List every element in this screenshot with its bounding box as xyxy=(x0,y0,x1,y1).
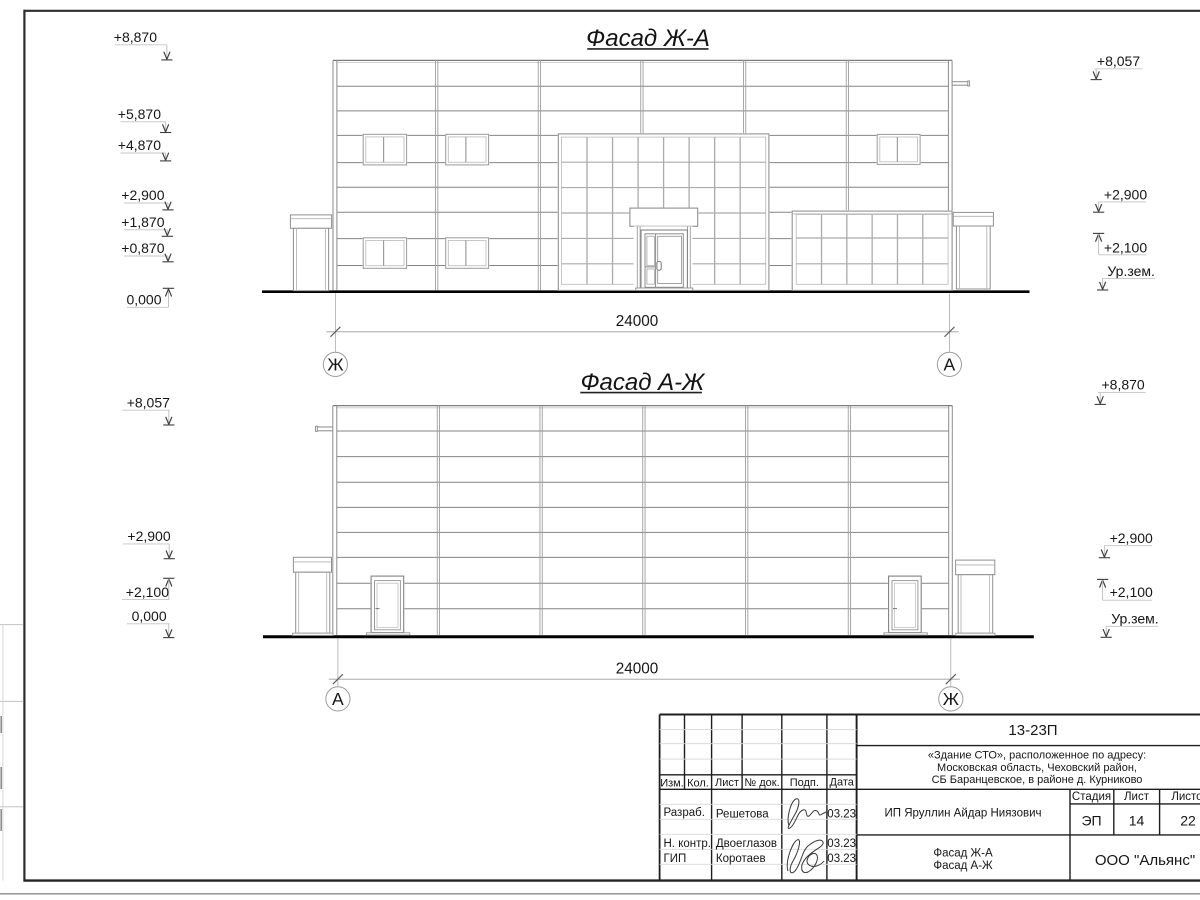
svg-text:Н. контр.: Н. контр. xyxy=(664,838,711,850)
svg-text:Лист: Лист xyxy=(715,777,739,789)
svg-text:А: А xyxy=(332,689,344,709)
svg-text:0,000: 0,000 xyxy=(132,608,167,624)
svg-text:«Здание СТО», расположенное по: «Здание СТО», расположенное по адресу: xyxy=(928,750,1146,762)
svg-text:Дата: Дата xyxy=(830,776,855,788)
svg-text:13-23П: 13-23П xyxy=(1008,722,1057,739)
svg-text:0,000: 0,000 xyxy=(126,292,161,308)
svg-text:+8,870: +8,870 xyxy=(1102,377,1145,393)
svg-text:Ур.зем.: Ур.зем. xyxy=(1111,611,1159,627)
svg-text:Московская область, Чеховский: Московская область, Чеховский район, xyxy=(937,762,1137,774)
svg-text:03.23: 03.23 xyxy=(827,853,856,865)
svg-text:ЭП: ЭП xyxy=(1081,813,1101,829)
svg-text:03.23: 03.23 xyxy=(827,838,856,850)
svg-text:Разраб.: Разраб. xyxy=(664,807,705,819)
svg-text:ООО "Альянс": ООО "Альянс" xyxy=(1095,852,1195,869)
svg-text:24000: 24000 xyxy=(616,313,659,330)
svg-text:+2,900: +2,900 xyxy=(121,187,164,203)
svg-text:+1,870: +1,870 xyxy=(121,214,164,230)
svg-text:№ док.: № док. xyxy=(744,777,779,789)
svg-text:Решетова: Решетова xyxy=(716,809,769,821)
svg-text:СБ Баранцевское, в районе д. К: СБ Баранцевское, в районе д. Курниково xyxy=(932,774,1143,786)
svg-text:Кол.: Кол. xyxy=(687,777,709,789)
svg-text:+2,900: +2,900 xyxy=(1110,530,1153,546)
svg-text:+5,870: +5,870 xyxy=(118,106,161,122)
svg-text:ГИП: ГИП xyxy=(664,853,687,865)
svg-text:ИП Яруллин Айдар Ниязович: ИП Яруллин Айдар Ниязович xyxy=(885,808,1042,820)
svg-text:+2,100: +2,100 xyxy=(1110,584,1153,600)
svg-text:Изм.: Изм. xyxy=(660,777,684,789)
svg-text:+2,100: +2,100 xyxy=(126,584,169,600)
svg-text:Фасад А-Ж: Фасад А-Ж xyxy=(933,860,993,872)
svg-text:+2,900: +2,900 xyxy=(127,528,170,544)
svg-text:14: 14 xyxy=(1129,813,1145,829)
svg-text:+8,057: +8,057 xyxy=(1097,53,1140,69)
svg-text:22: 22 xyxy=(1180,813,1196,829)
svg-text:24000: 24000 xyxy=(616,661,659,678)
svg-text:+2,900: +2,900 xyxy=(1104,186,1147,202)
svg-text:Коротаев: Коротаев xyxy=(716,853,766,865)
svg-text:Ж: Ж xyxy=(327,355,343,375)
svg-text:+0,870: +0,870 xyxy=(121,240,164,256)
svg-text:+8,057: +8,057 xyxy=(127,394,170,410)
svg-text:Фасад А-Ж: Фасад А-Ж xyxy=(580,369,706,396)
svg-text:+8,870: +8,870 xyxy=(114,29,157,45)
svg-text:+4,870: +4,870 xyxy=(118,137,161,153)
svg-text:Подп.: Подп. xyxy=(790,777,819,789)
svg-text:Фасад Ж-А: Фасад Ж-А xyxy=(933,848,993,860)
svg-text:03.23: 03.23 xyxy=(827,809,856,821)
svg-text:Ур.зем.: Ур.зем. xyxy=(1107,263,1155,279)
svg-text:Ж: Ж xyxy=(943,689,959,709)
svg-text:Листов: Листов xyxy=(1171,791,1200,803)
svg-text:Лист: Лист xyxy=(1124,791,1150,803)
svg-text:Стадия: Стадия xyxy=(1072,791,1111,803)
svg-text:Двоеглазов: Двоеглазов xyxy=(716,838,777,850)
svg-text:А: А xyxy=(944,355,956,375)
svg-text:+2,100: +2,100 xyxy=(1104,239,1147,255)
